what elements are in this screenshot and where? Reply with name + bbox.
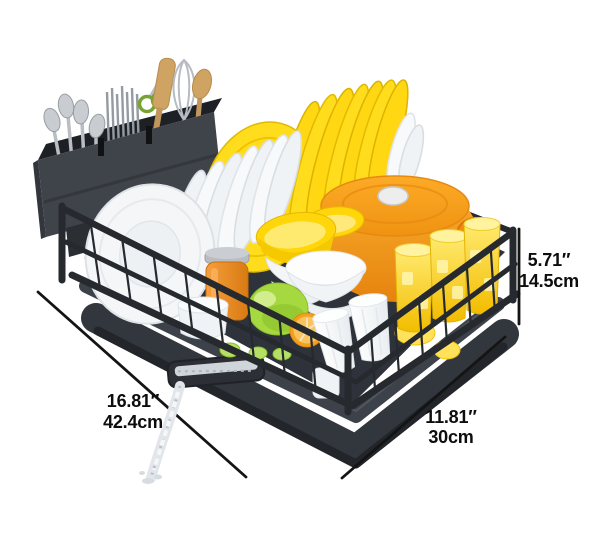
depth-label-metric: 30cm xyxy=(428,427,473,447)
product-photo: 16.81″ 42.4cm 11.81″ 30cm 5.71″ 14.5cm xyxy=(0,0,600,534)
height-label-inches: 5.71″ xyxy=(528,250,571,270)
pot-knob xyxy=(378,187,408,205)
yellow-cup xyxy=(395,244,433,333)
depth-label-inches: 11.81″ xyxy=(425,407,477,427)
length-label-metric: 42.4cm xyxy=(103,412,163,432)
height-label-metric: 14.5cm xyxy=(519,271,579,291)
dimension-height: 5.71″ 14.5cm xyxy=(519,229,579,324)
dish-rack-illustration: 16.81″ 42.4cm 11.81″ 30cm 5.71″ 14.5cm xyxy=(0,0,600,534)
length-label-inches: 16.81″ xyxy=(107,391,160,411)
